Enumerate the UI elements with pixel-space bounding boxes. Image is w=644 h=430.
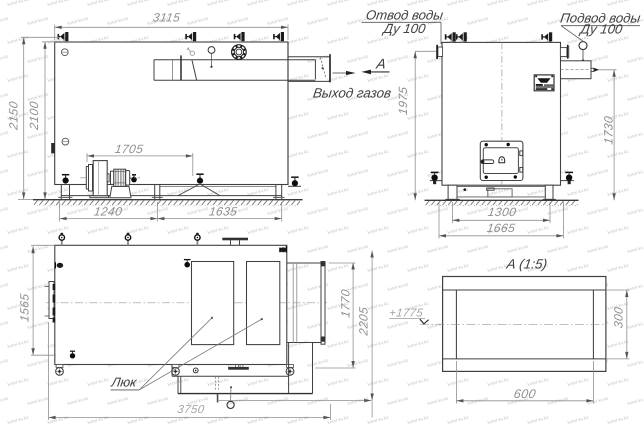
svg-text:А (1:5): А (1:5) bbox=[505, 256, 549, 271]
svg-text:Ду 100: Ду 100 bbox=[381, 21, 427, 36]
svg-text:1975: 1975 bbox=[396, 86, 410, 116]
svg-text:+1775: +1775 bbox=[388, 307, 424, 319]
svg-text:2150: 2150 bbox=[7, 100, 21, 131]
svg-text:1730: 1730 bbox=[601, 115, 615, 145]
svg-text:1770: 1770 bbox=[338, 288, 352, 318]
svg-text:Люк: Люк bbox=[110, 374, 139, 389]
svg-text:1565: 1565 bbox=[17, 293, 31, 323]
svg-text:3750: 3750 bbox=[176, 404, 205, 416]
svg-text:2100: 2100 bbox=[27, 100, 41, 131]
svg-text:Выход газов: Выход газов bbox=[312, 86, 392, 101]
svg-text:3115: 3115 bbox=[152, 10, 181, 24]
svg-text:Ду 100: Ду 100 bbox=[578, 21, 624, 36]
svg-text:2205: 2205 bbox=[357, 306, 371, 337]
svg-text:300: 300 bbox=[612, 306, 626, 329]
svg-text:1240: 1240 bbox=[93, 205, 123, 219]
svg-text:1665: 1665 bbox=[486, 221, 516, 235]
svg-text:1300: 1300 bbox=[487, 205, 517, 219]
svg-text:1705: 1705 bbox=[114, 142, 144, 156]
svg-text:Отвод воды: Отвод воды bbox=[365, 7, 444, 22]
svg-text:1635: 1635 bbox=[208, 205, 238, 219]
svg-text:600: 600 bbox=[513, 387, 537, 401]
